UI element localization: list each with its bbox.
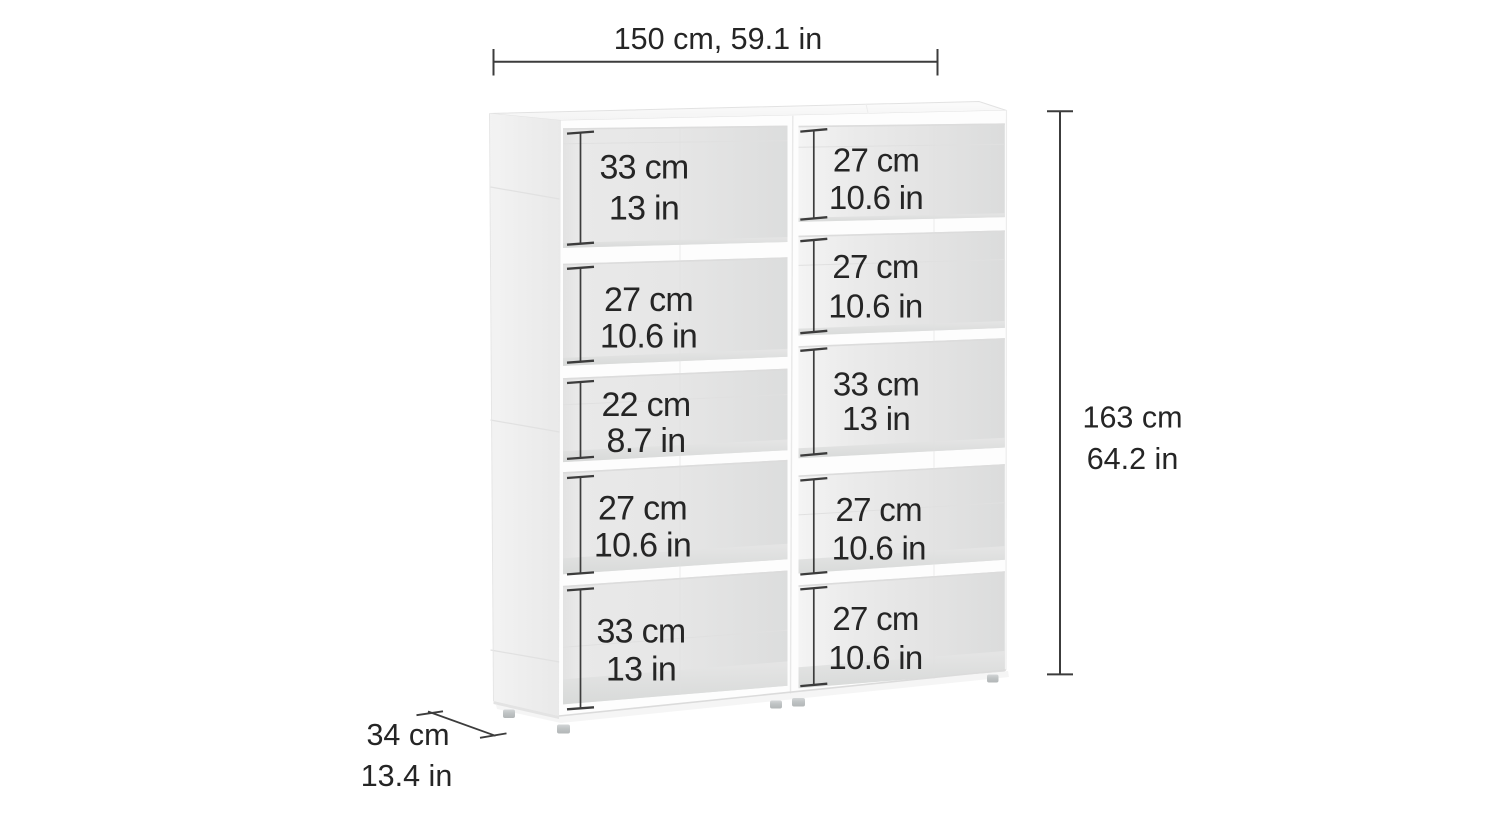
svg-text:13.4 in: 13.4 in [361, 759, 453, 793]
svg-text:10.6 in: 10.6 in [828, 639, 922, 676]
svg-text:163 cm: 163 cm [1082, 401, 1182, 435]
svg-text:27 cm: 27 cm [836, 491, 922, 528]
svg-text:13 in: 13 in [609, 190, 679, 228]
svg-text:34 cm: 34 cm [366, 718, 449, 752]
svg-text:13 in: 13 in [606, 650, 676, 688]
svg-text:10.6 in: 10.6 in [828, 288, 922, 325]
svg-text:10.6 in: 10.6 in [829, 179, 923, 216]
svg-text:10.6 in: 10.6 in [594, 527, 691, 565]
svg-text:10.6 in: 10.6 in [600, 317, 697, 355]
svg-text:33 cm: 33 cm [833, 366, 919, 403]
svg-text:27 cm: 27 cm [598, 489, 687, 527]
svg-text:10.6 in: 10.6 in [832, 530, 926, 567]
svg-text:64.2 in: 64.2 in [1087, 442, 1179, 476]
svg-text:27 cm: 27 cm [832, 248, 918, 285]
svg-text:27 cm: 27 cm [604, 281, 693, 319]
svg-text:27 cm: 27 cm [833, 142, 919, 179]
svg-text:33 cm: 33 cm [599, 149, 688, 187]
svg-text:150 cm, 59.1 in: 150 cm, 59.1 in [614, 22, 823, 56]
svg-text:27 cm: 27 cm [832, 600, 918, 637]
svg-text:33 cm: 33 cm [596, 612, 685, 650]
svg-text:8.7 in: 8.7 in [607, 422, 686, 460]
svg-text:22 cm: 22 cm [601, 386, 690, 424]
svg-text:13 in: 13 in [842, 400, 910, 437]
